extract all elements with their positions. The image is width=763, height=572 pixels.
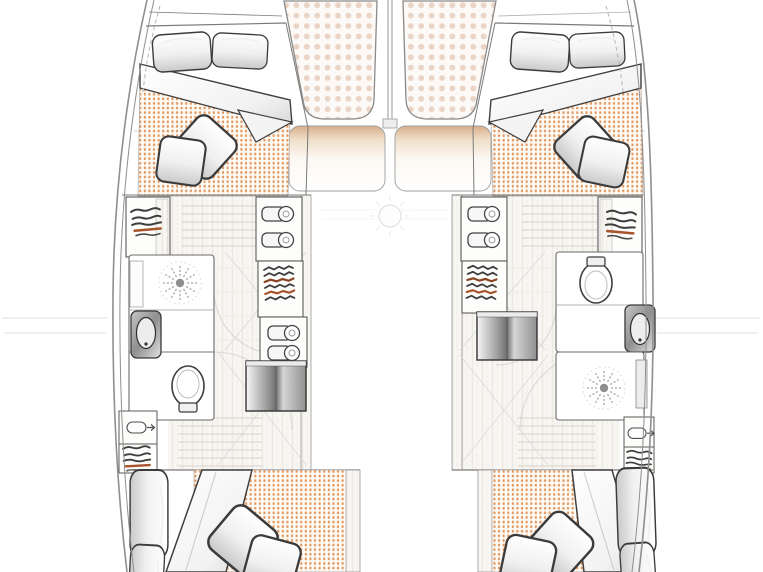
- scatter-cushion-icon: [155, 135, 207, 187]
- headboard-line: [495, 23, 634, 26]
- washbasin-icon: [131, 311, 161, 358]
- port-latch-locker: [119, 411, 157, 444]
- port-bathroom: [129, 255, 214, 420]
- towel-roll-icon: [268, 346, 300, 361]
- starboard-shower-room: [556, 352, 647, 420]
- towel-roll-icon: [468, 233, 500, 248]
- port-hanging-locker: [258, 261, 303, 317]
- bow-locker-line: [498, 12, 631, 16]
- forestay-center-beam: [383, 0, 397, 128]
- starboard-forward-berth: [473, 12, 643, 196]
- trampoline-port: [284, 1, 377, 119]
- aft-inboard-wood-strip: [478, 470, 492, 572]
- port-towel-locker-2: [260, 317, 307, 367]
- pillow-icon: [212, 33, 269, 70]
- floor-plan-drawing: [0, 0, 763, 572]
- towel-roll-icon: [268, 326, 300, 341]
- starboard-hanging-locker: [462, 261, 507, 313]
- pillow-icon: [152, 31, 212, 72]
- port-storage-cabinet: [246, 361, 306, 411]
- starboard-aft-berth: [452, 467, 659, 572]
- port-towel-locker-1: [256, 197, 302, 261]
- vanity-panel: [130, 261, 143, 307]
- foredeck-panel-port: [289, 126, 385, 191]
- starboard-towel-locker-1: [461, 197, 507, 261]
- washbasin-icon: [625, 305, 655, 352]
- towel-roll-icon: [468, 207, 500, 222]
- headboard-line: [146, 23, 286, 26]
- starboard-wardrobe-shelves: [598, 197, 642, 257]
- trampoline-starboard: [403, 1, 496, 119]
- mast-icon: [318, 196, 462, 236]
- bow-locker-line: [149, 12, 282, 16]
- towel-roll-icon: [262, 233, 294, 248]
- towel-roll-icon: [262, 207, 294, 222]
- port-wardrobe-shelves: [126, 197, 170, 257]
- starboard-toilet-room: [556, 252, 655, 352]
- starboard-storage-cabinet: [477, 312, 537, 360]
- port-forward-berth: [138, 12, 308, 196]
- catamaran-floor-plan: [0, 0, 763, 572]
- port-aft-berth: [127, 470, 360, 572]
- pillow-icon: [510, 31, 570, 72]
- starboard-hull: [452, 0, 659, 572]
- aft-inboard-wood-strip: [346, 470, 360, 572]
- scatter-cushion-icon: [577, 135, 631, 189]
- foredeck-panel-starboard: [395, 126, 491, 191]
